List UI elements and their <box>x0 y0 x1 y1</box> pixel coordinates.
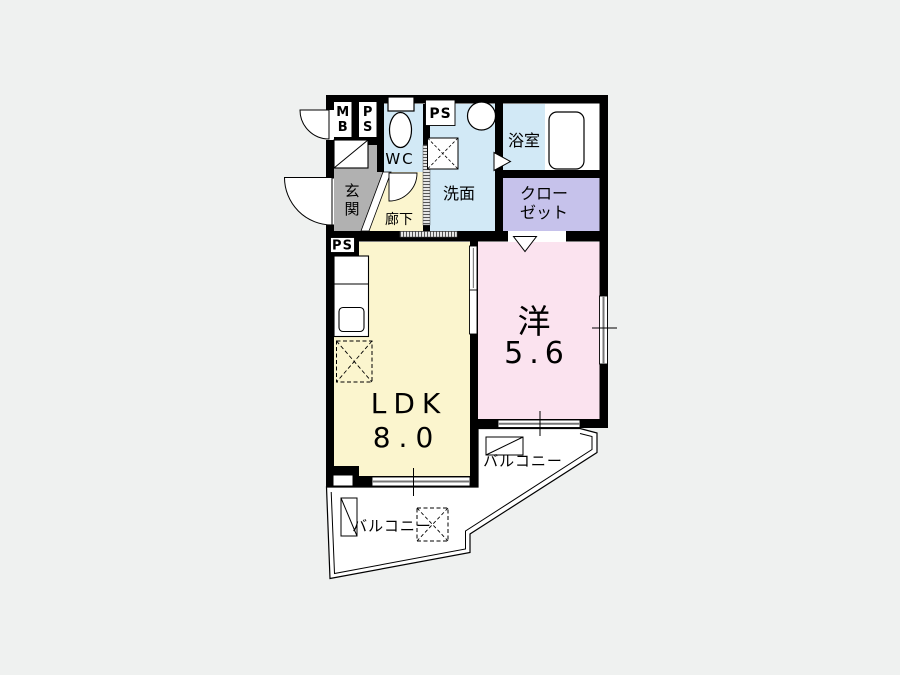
floorplan-svg: M B P S PS PS WC 洗面 浴室 クロー ゼット 玄 関 廊下 LD… <box>0 0 900 675</box>
wall-bath-closet <box>495 170 608 178</box>
ldk-name-label: LDK <box>371 387 448 420</box>
kitchen-counter-symbol <box>334 256 369 337</box>
hallway-label: 廊下 <box>385 211 413 228</box>
western-room-size-label: 5.6 <box>504 336 570 371</box>
balcony-right-label: バルコニー <box>483 452 563 470</box>
wall-left <box>326 95 334 487</box>
wall-right <box>600 95 609 428</box>
entrance-label-char1: 玄 <box>344 182 359 200</box>
bathroom-label: 浴室 <box>508 131 540 150</box>
entrance-label-char2: 関 <box>344 200 359 218</box>
toilet-symbol <box>390 113 412 148</box>
meter-box-label-m: M <box>336 105 349 120</box>
sliding-door-ldk <box>400 232 457 238</box>
sliding-door-western <box>470 246 478 334</box>
sink-symbol <box>468 102 496 130</box>
wall-notch <box>334 476 353 486</box>
toilet-tank-symbol <box>388 97 414 111</box>
closet-label-line2: ゼット <box>520 203 568 222</box>
wall-wc-left <box>377 95 384 172</box>
washing-machine-symbol <box>428 138 459 169</box>
shoe-cabinet-symbol <box>334 140 368 168</box>
washroom-label: 洗面 <box>443 184 475 203</box>
bathtub-symbol <box>549 112 584 169</box>
pipe-space-top-label: PS <box>429 106 451 122</box>
wall-washroom-left-bottom <box>423 225 430 232</box>
wc-label: WC <box>385 150 414 168</box>
floorplan-image: M B P S PS PS WC 洗面 浴室 クロー ゼット 玄 関 廊下 LD… <box>0 0 900 675</box>
pipe-space-left-label-p: P <box>363 105 373 120</box>
closet-label-line1: クロー <box>520 184 568 203</box>
pipe-space-left-label-s: S <box>363 120 372 135</box>
meter-box-label-b: B <box>338 120 348 135</box>
pipe-space-kitchen-label: PS <box>332 239 353 254</box>
balcony-bottom-label: バルコニー <box>352 517 432 535</box>
ldk-size-label: 8.0 <box>373 421 442 454</box>
